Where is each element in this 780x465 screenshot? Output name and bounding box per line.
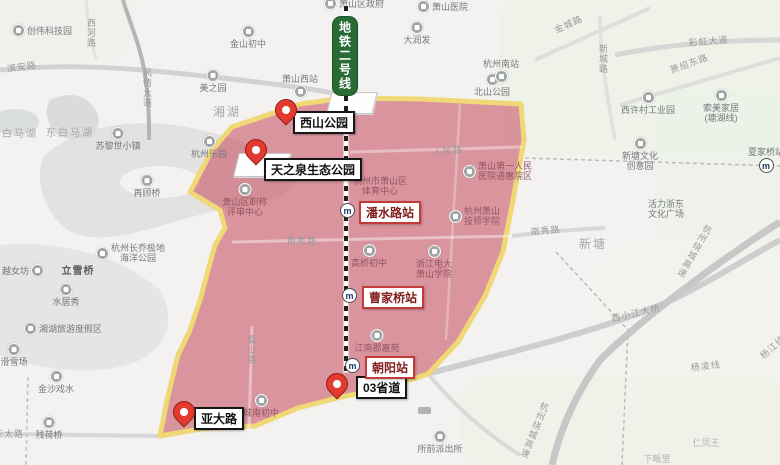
poi-icon (140, 174, 153, 187)
poi-icon (241, 25, 254, 38)
poi-label: 杭州萧山技师学院 (464, 206, 500, 226)
road-label: 新城路 (597, 44, 610, 74)
poi-label: 水居秀 (52, 297, 79, 307)
poi-lixueqiao[interactable]: 立雪桥 (62, 267, 95, 277)
poi-xintang-culture-creative-park[interactable]: 新塘文化创意园 (622, 137, 658, 171)
poi-suomei-home[interactable]: 索美家居(塘湖线) (703, 89, 739, 123)
poi-icon (370, 329, 383, 342)
poi-zurich-town[interactable]: 苏黎世小镇 (95, 127, 140, 151)
poi-icon (96, 247, 109, 260)
poi-jinshan-middle-school[interactable]: 金山初中 (230, 25, 266, 49)
poi-icon (427, 245, 440, 258)
pin-label-yada-road: 亚大路 (194, 407, 244, 430)
metro-station-icon[interactable]: m (342, 288, 357, 303)
poi-label: 湘湖旅游度假区 (39, 324, 102, 334)
poi-canheqiao[interactable]: 残荷桥 (35, 416, 62, 440)
poi-label: 新塘文化创意园 (622, 151, 658, 171)
poi-renfengwang[interactable]: 仁凤王 (692, 438, 719, 448)
poi-label: 高桥初中 (351, 258, 387, 268)
poi-label: 夏家桥站 (748, 147, 780, 157)
area-label: 白马湖 (2, 125, 38, 140)
poi-icon (24, 322, 37, 335)
poi-label: 金山初中 (230, 39, 266, 49)
road-label: 南秀路 (287, 234, 317, 247)
poi-icon (293, 85, 306, 98)
poi-icon (111, 127, 124, 140)
poi-first-peoples-hospital[interactable]: 萧山第一人民医院通惠院区 (463, 161, 532, 181)
poi-label: 美之园 (199, 83, 226, 93)
pin-dot (280, 104, 291, 115)
metro-station-icon: m (758, 158, 773, 173)
station-label: 曹家桥站 (362, 286, 424, 309)
poi-xianghu-resort[interactable]: 湘湖旅游度假区 (24, 322, 102, 335)
poi-label: 萧山第一人民医院通惠院区 (478, 161, 532, 181)
poi-icon (12, 24, 25, 37)
area-label: 湘湖 (213, 103, 241, 120)
road-label: 南秀路 (530, 222, 561, 238)
poi-label: 杭州长乔极地海洋公园 (111, 243, 165, 263)
poi-yuenvfang[interactable]: 越女坊 (2, 264, 44, 277)
poi-huoli-zhedong-plaza[interactable]: 活力浙东文化广场 (648, 199, 684, 219)
pin-label-provincial-road-03: 03省道 (356, 376, 407, 399)
poi-label: 西许村工业园 (621, 105, 675, 115)
poi-label: 杭州乐园 (191, 149, 227, 159)
poi-label: 苏黎世小镇 (95, 141, 140, 151)
poi-dianda-college[interactable]: 浙江电大萧山学院 (416, 245, 452, 279)
poi-label: 仁凤王 (692, 438, 719, 448)
poi-icon (49, 370, 62, 383)
station-label: 朝阳站 (365, 356, 415, 379)
poi-label: 活力浙东文化广场 (648, 199, 684, 219)
road-label: 风情大道 (141, 68, 154, 108)
poi-icon (254, 394, 267, 407)
poi-darunfa[interactable]: 大润发 (403, 21, 430, 45)
poi-meizhiyuan[interactable]: 美之园 (199, 69, 226, 93)
poi-icon (410, 21, 423, 34)
poi-icon (433, 430, 446, 443)
poi-label: 萧山西站 (282, 74, 318, 84)
road-label: 亚太路 (0, 427, 24, 440)
poi-label: 滑雪场 (0, 357, 27, 367)
poi-icon (31, 264, 44, 277)
poi-xiaoshan-district-gov[interactable]: 萧山区政府 (324, 0, 384, 10)
poi-icon (714, 89, 727, 102)
poi-jinsha-xishui[interactable]: 金沙戏水 (38, 370, 74, 394)
poi-icon (59, 283, 72, 296)
metro-station-icon[interactable]: m (340, 203, 355, 218)
poi-icon (42, 416, 55, 429)
poi-label: 北山公园 (474, 87, 510, 97)
poi-xiaoshan-review-center[interactable]: 萧山区职称评审中心 (222, 183, 267, 217)
map-canvas[interactable]: 地铁二号线 湘湖白马湖东白马湖新塘西河路风情大道滨安路金城路彩虹大道新城路萧绍东… (0, 0, 780, 465)
poi-label: 金沙戏水 (38, 384, 74, 394)
poi-label: 浙江电大萧山学院 (416, 259, 452, 279)
poi-icon (633, 137, 646, 150)
road-label: 蜀山路 (245, 335, 258, 365)
pin-dot (178, 406, 189, 417)
poi-label: 萧山医院 (432, 2, 468, 12)
metro-line-2-badge: 地铁二号线 (332, 16, 358, 96)
metro-station-icon[interactable]: m (345, 358, 360, 373)
pin-dot (250, 144, 261, 155)
poi-zaiguqiao[interactable]: 再顾桥 (133, 174, 160, 198)
poi-chuangwei-tech-park[interactable]: 创伟科技园 (12, 24, 72, 37)
poi-xiajiaqiao-station[interactable]: 夏家桥站m (748, 147, 780, 173)
poi-label: 创伟科技园 (27, 26, 72, 36)
poi-jiangnanjun-jiayuan[interactable]: 江南郡嘉苑 (354, 329, 399, 353)
poi-icon (449, 210, 462, 223)
poi-suoqian-police-station[interactable]: 所前派出所 (417, 430, 462, 454)
poi-label: 索美家居(塘湖线) (703, 103, 739, 123)
poi-label: 杭州南站 (483, 59, 519, 69)
poi-icon (324, 0, 337, 10)
poi-icon (202, 135, 215, 148)
poi-label: 大润发 (403, 35, 430, 45)
poi-label: 下畈里 (643, 454, 670, 464)
poi-icon (641, 91, 654, 104)
poi-xiafanli[interactable]: 下畈里 (643, 454, 670, 464)
poi-icon (238, 183, 251, 196)
road-label: 西河路 (85, 18, 98, 48)
poi-gaoqiao-middle-school[interactable]: 高桥初中 (351, 244, 387, 268)
poi-shuijuxiu[interactable]: 水居秀 (52, 283, 79, 307)
poi-hangzhou-south-station[interactable]: 杭州南站 (483, 59, 519, 83)
poi-label: 所前派出所 (417, 444, 462, 454)
poi-icon (417, 0, 430, 13)
area-label: 新塘 (579, 235, 607, 252)
poi-icon (206, 69, 219, 82)
poi-icon (494, 70, 507, 83)
poi-label: 萧山区职称评审中心 (222, 197, 267, 217)
pin-dot (331, 378, 342, 389)
poi-jishi-college[interactable]: 杭州萧山技师学院 (449, 206, 500, 226)
pin-label-tianzhiquan-eco-park: 天之泉生态公园 (264, 158, 362, 181)
poi-hangzhou-paradise[interactable]: 杭州乐园 (191, 135, 227, 159)
poi-xixucun-industrial-park[interactable]: 西许村工业园 (621, 91, 675, 115)
area-label: 东白马湖 (46, 124, 94, 139)
poi-label: 越女坊 (2, 266, 29, 276)
poi-label: 江南郡嘉苑 (354, 343, 399, 353)
poi-label: 城南初中 (243, 408, 279, 418)
road-number-badge (418, 407, 431, 414)
station-label: 潘水路站 (359, 201, 421, 224)
poi-icon (362, 244, 375, 257)
poi-xiaoshan-west-station[interactable]: 萧山西站 (282, 74, 318, 98)
poi-xiaoshan-hospital[interactable]: 萧山医院 (417, 0, 468, 13)
poi-label: 残荷桥 (35, 430, 62, 440)
poi-chengnan-middle-school[interactable]: 城南初中 (243, 394, 279, 418)
poi-label: 再顾桥 (133, 188, 160, 198)
poi-icon (7, 343, 20, 356)
poi-ski-field[interactable]: 滑雪场 (0, 343, 27, 367)
pin-label-xishan-park: 西山公园 (293, 111, 355, 134)
poi-label: 立雪桥 (62, 267, 95, 277)
poi-icon (463, 165, 476, 178)
poi-changqiao-polar-ocean-park[interactable]: 杭州长乔极地海洋公园 (96, 243, 165, 263)
